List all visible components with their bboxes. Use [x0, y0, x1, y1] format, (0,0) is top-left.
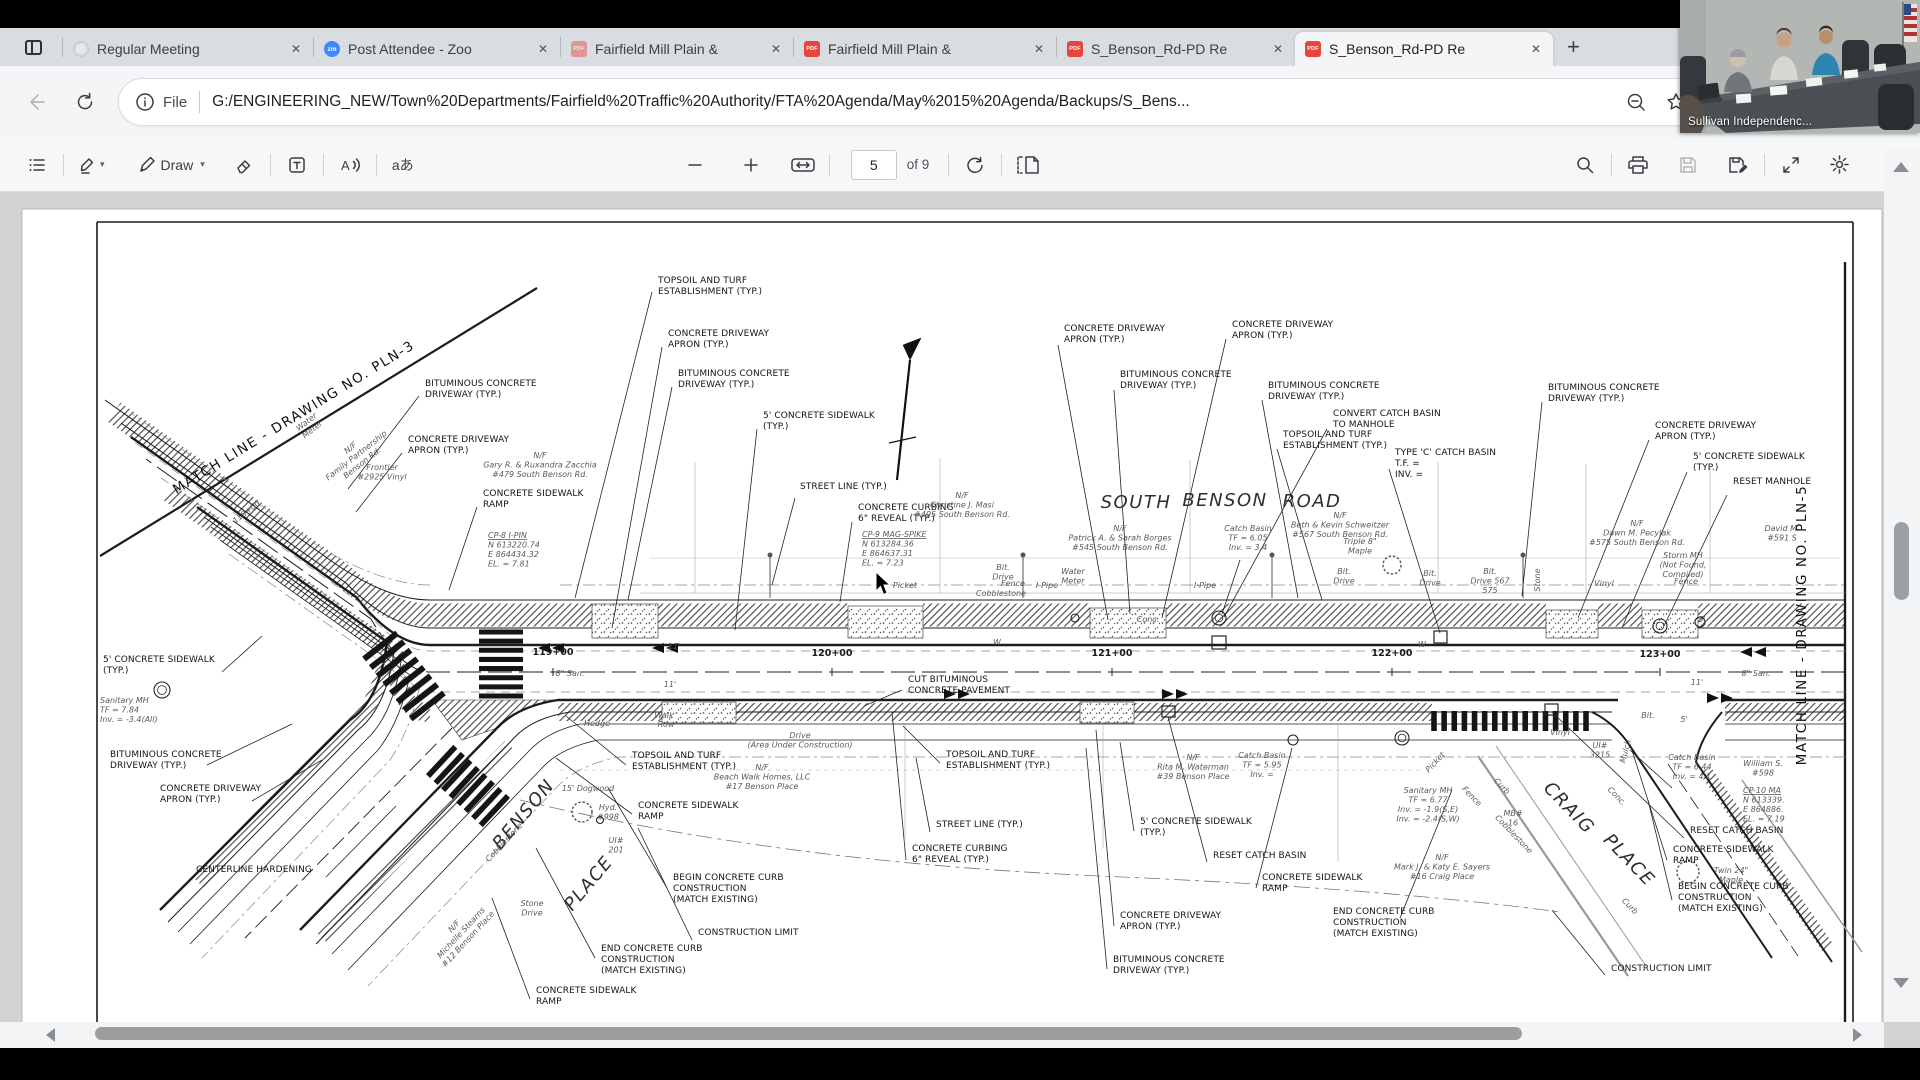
close-icon[interactable]: ✕	[1269, 40, 1287, 58]
existing-feature-label: Cobblestone	[976, 589, 1026, 598]
table-of-contents-button[interactable]	[20, 148, 54, 182]
utility-pole-top	[1521, 553, 1526, 558]
table-of-contents-icon	[27, 155, 47, 175]
read-aloud-icon: A	[339, 155, 361, 175]
pdf-icon: PDF	[1067, 41, 1083, 57]
tab-post-attendee[interactable]: zm Post Attendee - Zoo ✕	[314, 32, 560, 66]
callout-label: TOPSOIL AND TURFESTABLISHMENT (TYP.)	[657, 276, 762, 297]
bottom-black-bar	[0, 1048, 1920, 1080]
existing-feature-label: 11'	[664, 680, 676, 689]
print-button[interactable]	[1621, 148, 1655, 182]
tab-bar: Regular Meeting ✕ zm Post Attendee - Zoo…	[0, 28, 1920, 66]
tab-label: S_Benson_Rd-PD Re	[1091, 41, 1263, 57]
highlighter-button[interactable]: ▾	[73, 148, 109, 182]
tab-divider	[62, 37, 63, 57]
tab-divider	[313, 37, 314, 57]
vertical-scroll-thumb[interactable]	[1894, 522, 1909, 600]
driveway-apron-texture	[1546, 610, 1598, 638]
existing-feature-label: Walk	[654, 711, 674, 720]
url-field[interactable]: File G:/ENGINEERING_NEW/Town%20Departmen…	[118, 78, 1704, 126]
back-icon	[24, 91, 46, 113]
tab-layout-button[interactable]	[18, 32, 48, 62]
print-icon	[1627, 155, 1649, 175]
scroll-down-icon[interactable]	[1893, 978, 1909, 988]
existing-feature-label: David M.#591 S	[1764, 524, 1799, 543]
callout-label: RESET MANHOLE	[1733, 477, 1811, 487]
tab-s-benson-2-active[interactable]: PDF S_Benson_Rd-PD Re ✕	[1295, 32, 1553, 66]
existing-feature-label: WaterMeter	[1061, 567, 1085, 586]
existing-feature-label: 5'	[1698, 615, 1705, 624]
existing-feature-label: Storm MH(Not Found,Compiled)	[1660, 551, 1707, 579]
horizontal-scroll-thumb[interactable]	[95, 1027, 1522, 1040]
zoom-out-page-icon[interactable]	[1625, 91, 1647, 113]
existing-feature-label: Conc.	[1137, 615, 1160, 624]
vertical-scrollbar[interactable]	[1884, 150, 1920, 1022]
callout-label: TOPSOIL AND TURFESTABLISHMENT (TYP.)	[945, 750, 1050, 771]
draw-pen-icon	[137, 155, 157, 175]
existing-feature-label: Catch BasinTF = 6.44Inv. = 4.1	[1668, 753, 1716, 781]
tab-fairfield-2[interactable]: PDF Fairfield Mill Plain & ✕	[794, 32, 1056, 66]
scheme-label: File	[163, 94, 187, 111]
page-view-button[interactable]	[1011, 148, 1045, 182]
tab-label: Regular Meeting	[97, 41, 281, 57]
street-name: ROAD	[1283, 491, 1342, 512]
reload-icon	[74, 91, 96, 113]
existing-feature-label: Sanitary MHTF = 6.77Inv. = -1.9(S,E)Inv.…	[1396, 786, 1459, 824]
callout-label: RESET CATCH BASIN	[1690, 826, 1783, 836]
existing-feature-label: Row	[658, 720, 675, 729]
pdf-icon: PDF	[804, 41, 820, 57]
station-label: 120+00	[811, 648, 852, 659]
existing-feature-label: 5'	[1680, 715, 1687, 724]
chevron-down-icon: ▾	[100, 159, 105, 170]
tab-divider	[560, 37, 561, 57]
utility-pole-top	[1021, 553, 1026, 558]
page-count-label: of 9	[907, 157, 930, 172]
pdf-icon-faded: PDF	[571, 41, 587, 57]
fullscreen-icon	[1781, 155, 1801, 175]
minus-icon	[686, 156, 704, 174]
address-bar-row: File G:/ENGINEERING_NEW/Town%20Departmen…	[0, 66, 1920, 138]
callout-label: STREET LINE (TYP.)	[936, 820, 1023, 830]
fit-width-icon	[790, 155, 816, 175]
fullscreen-button[interactable]	[1774, 148, 1808, 182]
existing-feature-label: I-Pipe	[1036, 581, 1058, 590]
existing-feature-label: Hyd.#998	[597, 803, 619, 822]
search-icon	[1575, 155, 1595, 175]
existing-feature-label: UI#201	[608, 836, 623, 855]
rotate-icon	[964, 154, 986, 176]
meeting-video-overlay[interactable]: Sullivan Independenc...	[1680, 0, 1920, 133]
horizontal-scrollbar[interactable]	[0, 1022, 1884, 1048]
existing-feature-label: UI#3215	[1590, 741, 1610, 760]
gear-icon	[1829, 154, 1850, 175]
scroll-up-icon[interactable]	[1893, 162, 1909, 172]
page-view-icon	[1016, 155, 1040, 175]
pdf-plan-canvas[interactable]: MATCH LINE - DRAWING NO. PLN-3MATCH LINE…	[0, 192, 1884, 1048]
callout-label: TOPSOIL AND TURFESTABLISHMENT (TYP.)	[631, 751, 736, 772]
existing-feature-label: Triple 8"Maple	[1343, 537, 1376, 556]
utility-pole-top	[1270, 553, 1275, 558]
draw-label: Draw	[161, 157, 194, 173]
save-as-button[interactable]	[1721, 148, 1755, 182]
driveway-apron-texture	[848, 606, 923, 638]
back-button[interactable]	[18, 85, 52, 119]
scheme-divider	[199, 91, 200, 113]
zoom-out-button[interactable]	[678, 148, 712, 182]
text-box-icon	[287, 155, 307, 175]
existing-feature-label: Hedge	[584, 719, 610, 728]
driveway-apron-texture	[1080, 702, 1134, 723]
eraser-icon	[234, 155, 254, 175]
browser-window: Regular Meeting ✕ zm Post Attendee - Zoo…	[0, 0, 1920, 1080]
existing-feature-label: Catch BasinTF = 6.05Inv. = 3.4	[1224, 524, 1272, 552]
tab-label: S_Benson_Rd-PD Re	[1329, 41, 1521, 57]
existing-feature-label: Stone	[1533, 568, 1542, 591]
close-icon[interactable]: ✕	[534, 40, 552, 58]
existing-feature-label: Vinyl	[1594, 579, 1615, 588]
callout-label: CONSTRUCTION LIMIT	[698, 928, 799, 938]
translate-icon: aあ	[392, 155, 414, 175]
us-flag-icon	[1904, 4, 1917, 42]
existing-feature-label: 11'	[668, 642, 680, 651]
tab-regular-meeting[interactable]: Regular Meeting ✕	[63, 32, 313, 66]
tab-label: Fairfield Mill Plain &	[595, 41, 761, 57]
street-name: SOUTH	[1101, 492, 1172, 513]
scroll-left-icon[interactable]	[46, 1028, 55, 1042]
rotate-button[interactable]	[958, 148, 992, 182]
callout-label: STREET LINE (TYP.)	[800, 482, 887, 492]
close-icon[interactable]: ✕	[1527, 40, 1545, 58]
callout-label: TOPSOIL AND TURFESTABLISHMENT (TYP.)	[1282, 430, 1387, 451]
save-as-icon	[1727, 155, 1749, 175]
utility-pole-top	[768, 553, 773, 558]
existing-feature-label: W	[993, 638, 1002, 647]
existing-feature-label: CP-10 MAN 613339.E 864886.EL. = 7.19	[1743, 786, 1785, 824]
callout-label: CENTERLINE HARDENING	[196, 865, 312, 875]
existing-feature-label: I-Pipe	[1194, 581, 1216, 590]
close-icon[interactable]: ✕	[1030, 40, 1048, 58]
fit-to-width-button[interactable]	[786, 148, 820, 182]
search-document-button[interactable]	[1568, 148, 1602, 182]
existing-feature-label: Vinyl	[1550, 728, 1571, 737]
existing-feature-label: W	[1418, 640, 1427, 649]
zoom-app-icon: zm	[324, 41, 340, 57]
settings-button[interactable]	[1822, 148, 1856, 182]
existing-feature-label: Picket	[893, 581, 918, 590]
existing-feature-label: Fence	[1674, 577, 1698, 586]
existing-feature-label: 8" San.	[556, 669, 585, 678]
close-icon[interactable]: ✕	[287, 40, 305, 58]
close-icon[interactable]: ✕	[767, 40, 785, 58]
meeting-room-scene	[1680, 0, 1920, 133]
new-tab-button[interactable]: +	[1567, 34, 1580, 60]
read-aloud-button[interactable]: A	[333, 148, 367, 182]
tab-layout-icon	[25, 40, 42, 55]
highlighter-icon	[77, 155, 97, 175]
save-icon	[1678, 155, 1698, 175]
scroll-right-icon[interactable]	[1853, 1028, 1862, 1042]
add-text-button[interactable]	[280, 148, 314, 182]
existing-feature-label: 15' Dogwood	[562, 784, 615, 793]
station-label: 121+00	[1091, 648, 1132, 659]
tab-fairfield-1[interactable]: PDF Fairfield Mill Plain & ✕	[561, 32, 793, 66]
callout-label: RESET CATCH BASIN	[1213, 851, 1306, 861]
speaker-caption: Sullivan Independenc...	[1688, 116, 1812, 128]
page-number-input[interactable]	[851, 150, 897, 180]
chevron-down-icon: ▾	[200, 159, 205, 170]
station-label: 119+00	[532, 647, 573, 658]
pdf-toolbar: ▾ Draw ▾ A aあ	[0, 138, 1920, 192]
tab-label: Post Attendee - Zoo	[348, 41, 528, 57]
page-info-icon	[135, 92, 155, 112]
tab-divider	[793, 37, 794, 57]
station-label: 123+00	[1639, 649, 1680, 660]
tab-label: Fairfield Mill Plain &	[828, 41, 1024, 57]
tab-s-benson-1[interactable]: PDF S_Benson_Rd-PD Re ✕	[1057, 32, 1295, 66]
svg-text:A: A	[341, 158, 350, 173]
top-black-bar	[0, 0, 1920, 28]
callout-label: CONSTRUCTION LIMIT	[1611, 964, 1712, 974]
url-text[interactable]: G:/ENGINEERING_NEW/Town%20Departments/Fa…	[212, 93, 1607, 111]
plus-icon	[742, 156, 760, 174]
existing-feature-label: 11'	[1691, 678, 1703, 687]
meeting-icon	[73, 41, 89, 57]
driveway-apron-texture	[592, 604, 658, 638]
existing-feature-label: StoneDrive	[520, 899, 543, 918]
tab-divider	[1056, 37, 1057, 57]
street-name: BENSON	[1182, 490, 1267, 511]
existing-feature-label: 8" San.	[1742, 669, 1771, 678]
reload-button[interactable]	[68, 85, 102, 119]
pdf-icon: PDF	[1305, 41, 1321, 57]
station-label: 122+00	[1371, 648, 1412, 659]
draw-button[interactable]: Draw ▾	[133, 148, 209, 182]
erase-button[interactable]	[227, 148, 261, 182]
existing-feature-label: Bit.	[1641, 711, 1654, 720]
save-button[interactable]	[1671, 148, 1705, 182]
zoom-in-button[interactable]	[734, 148, 768, 182]
translate-button[interactable]: aあ	[386, 148, 420, 182]
